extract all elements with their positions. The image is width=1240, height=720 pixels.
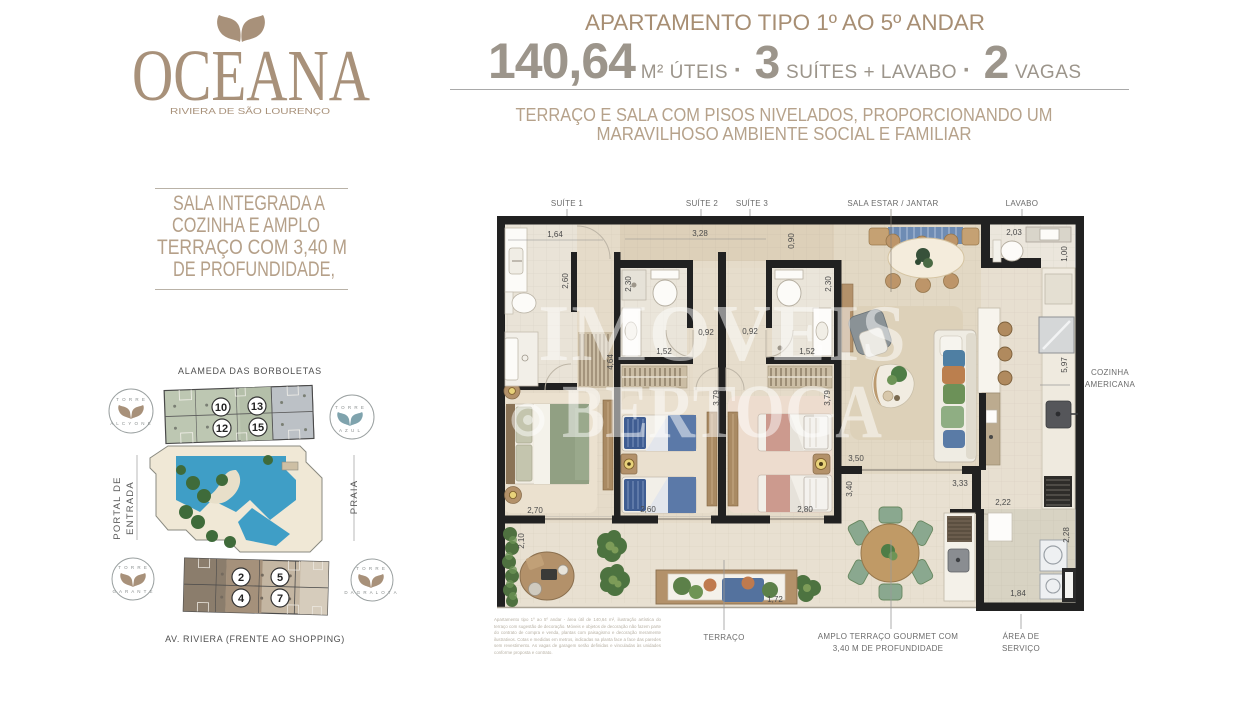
svg-text:3,79: 3,79 [712,390,721,406]
svg-text:2,60: 2,60 [561,273,570,289]
svg-text:IMOVEIS: IMOVEIS [538,290,908,378]
svg-text:LAVABO: LAVABO [1006,199,1039,208]
svg-text:BERTOGA: BERTOGA [562,370,882,454]
svg-text:5,97: 5,97 [1060,357,1069,373]
svg-text:0,92: 0,92 [698,328,714,337]
svg-text:1,00: 1,00 [1060,246,1069,262]
svg-text:SUÍTE 3: SUÍTE 3 [736,199,769,208]
svg-text:2,80: 2,80 [797,505,813,514]
svg-text:1,72: 1,72 [767,595,783,604]
svg-text:3,40: 3,40 [845,481,854,497]
svg-text:1,52: 1,52 [799,347,815,356]
svg-text:AMERICANA: AMERICANA [1085,380,1136,389]
svg-text:2,28: 2,28 [1062,527,1071,543]
svg-text:3,40 M DE PROFUNDIDADE: 3,40 M DE PROFUNDIDADE [833,644,944,653]
svg-text:2,30: 2,30 [824,276,833,292]
svg-text:SUÍTE 2: SUÍTE 2 [686,199,719,208]
svg-text:2,30: 2,30 [624,276,633,292]
svg-text:0,92: 0,92 [742,327,758,336]
svg-text:TERRAÇO: TERRAÇO [703,633,744,642]
svg-text:3,28: 3,28 [692,229,708,238]
svg-text:2,10: 2,10 [517,533,526,549]
svg-text:2,22: 2,22 [995,498,1011,507]
svg-text:AMPLO TERRAÇO GOURMET COM: AMPLO TERRAÇO GOURMET COM [818,632,959,641]
svg-text:3,50: 3,50 [848,454,864,463]
svg-text:SUÍTE 1: SUÍTE 1 [551,199,584,208]
svg-text:1,84: 1,84 [1010,589,1026,598]
svg-text:COZINHA: COZINHA [1091,368,1129,377]
svg-text:SALA ESTAR / JANTAR: SALA ESTAR / JANTAR [847,199,938,208]
svg-text:3,33: 3,33 [952,479,968,488]
svg-text:1,52: 1,52 [656,347,672,356]
svg-text:3,79: 3,79 [823,390,832,406]
svg-text:SERVIÇO: SERVIÇO [1002,644,1040,653]
svg-text:1,64: 1,64 [547,230,563,239]
svg-text:4,64: 4,64 [606,354,615,370]
svg-text:2,70: 2,70 [527,506,543,515]
svg-text:ÁREA DE: ÁREA DE [1003,632,1040,641]
svg-text:2,03: 2,03 [1006,228,1022,237]
svg-text:2,60: 2,60 [640,505,656,514]
svg-text:0,90: 0,90 [787,233,796,249]
